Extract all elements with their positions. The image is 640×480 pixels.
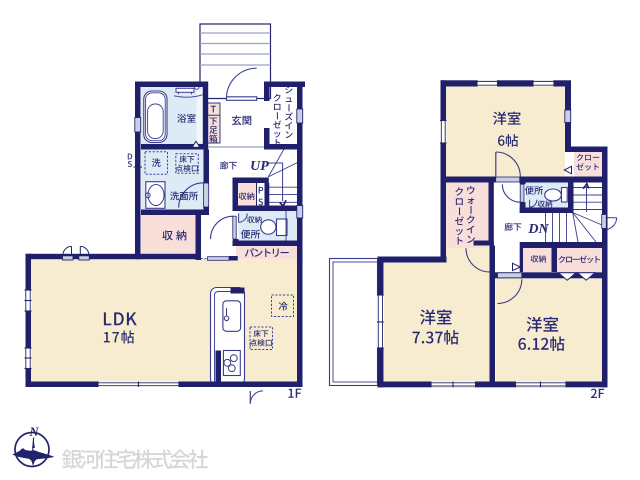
svg-text:DN: DN	[527, 222, 549, 237]
svg-text:UP: UP	[250, 159, 269, 174]
svg-text:N: N	[28, 425, 39, 439]
